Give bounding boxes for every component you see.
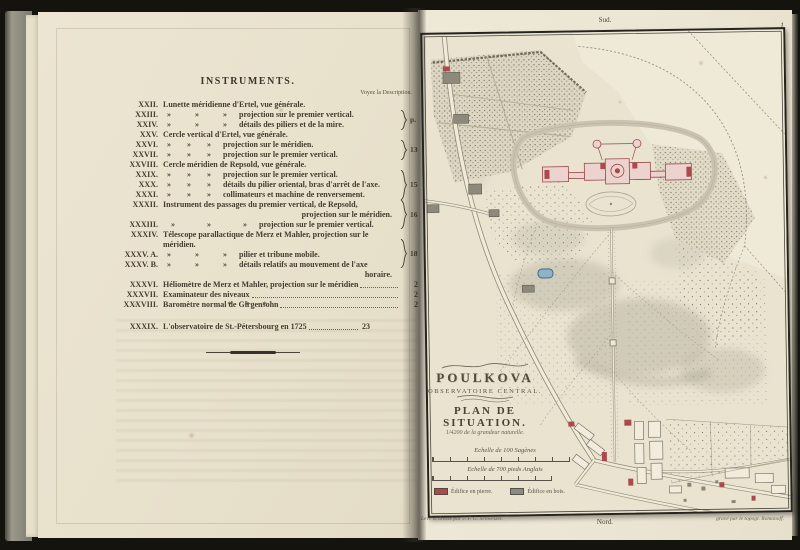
table-row: XXXII.Instrument des passages du premier…: [108, 200, 426, 220]
left-page: INSTRUMENTS. Voyez la Description. XXII.…: [38, 12, 418, 538]
toc-roman-numeral: XXXI.: [108, 190, 163, 200]
table-row: XXXIX.L'observatoire de St.-Pétersbourg …: [108, 322, 426, 332]
table-row: XXXIV.Télescope parallactique de Merz et…: [108, 230, 426, 250]
toc-roman-numeral: XXXIV.: [108, 230, 163, 250]
stone-building-small: [443, 66, 450, 71]
wood-swatch: [510, 488, 524, 495]
toc-entry-text: » » » détails du pilier oriental, bras d…: [163, 180, 392, 190]
legend-label: Édifice en bois.: [527, 489, 565, 495]
table-row: XXV.Cercle vertical d'Ertel, vue général…: [108, 130, 426, 140]
instrument-list-last: XXXIX.L'observatoire de St.-Pétersbourg …: [108, 322, 426, 332]
toc-roman-numeral: XXXVII.: [108, 290, 163, 300]
legend-label: Édifice en pierre.: [451, 489, 492, 495]
table-row: XXIII. » » » projection sur le premier v…: [108, 110, 426, 120]
map-legend: Édifice en pierre. Édifice en bois.: [434, 488, 583, 495]
foxing-spot: [133, 302, 138, 307]
toc-entry-text: » » » projection sur le premier vertical…: [163, 170, 392, 180]
column-header: Voyez la Description.: [360, 90, 412, 96]
toc-roman-numeral: XXXIII.: [108, 220, 163, 230]
toc-roman-numeral: XXXV. A.: [108, 250, 163, 260]
toc-entry-text: » » » projection sur le méridien.: [163, 140, 392, 150]
scale-bar-feet: [432, 476, 552, 481]
subtitle-flourish: [455, 395, 515, 403]
decorative-rule: [206, 352, 300, 353]
instrument-list: XXII.Lunette méridienne d'Ertel, vue gén…: [108, 100, 426, 310]
table-row: XXXV. B. » » » détails relatifs au mouve…: [108, 260, 426, 280]
toc-roman-numeral: XXV.: [108, 130, 163, 140]
toc-roman-numeral: XXIV.: [108, 120, 163, 130]
legend-item-stone: Édifice en pierre.: [434, 488, 492, 495]
map-subtitle: OBSERVATOIRE CENTRAL.: [426, 388, 544, 395]
toc-entry-text: L'observatoire de St.-Pétersbourg en 172…: [163, 322, 307, 332]
toc-entry-text: » » » pilier et tribune mobile.: [163, 250, 392, 260]
table-row: XXXI. » » » collimateurs et machine de r…: [108, 190, 426, 200]
toc-roman-numeral: XXII.: [108, 100, 163, 110]
map-plate: [420, 27, 793, 518]
toc-roman-numeral: XXIX.: [108, 170, 163, 180]
table-row: XXVIII.Cercle méridien de Repsold, vue g…: [108, 160, 426, 170]
show-through-text: [116, 312, 416, 482]
foxing-spot: [698, 60, 704, 66]
title-flourish: [440, 362, 530, 370]
toc-roman-numeral: XXVI.: [108, 140, 163, 150]
toc-entry-text: » » » projection sur le premier vertical…: [163, 220, 392, 230]
map-cartouche: POULKOVA OBSERVATOIRE CENTRAL. PLAN DE S…: [426, 362, 544, 436]
scale-label-sagenes: Echelle de 100 Sagènes: [430, 447, 580, 454]
table-row: XXXVI.Héliomètre de Merz et Mahler, proj…: [108, 280, 426, 290]
table-row: XXIX. » » » projection sur le premier ve…: [108, 170, 426, 180]
scale-bar-sagenes: [432, 457, 570, 462]
table-row: XXXVII.Examinateur des niveaux222: [108, 290, 426, 300]
toc-entry-text: » » » détails des piliers et de la mire.: [163, 120, 392, 130]
toc-entry-text: Héliomètre de Merz et Mahler, projection…: [163, 280, 358, 290]
toc-roman-numeral: XXXV. B.: [108, 260, 163, 280]
toc-entry-text: » » » projection sur le premier vertical…: [163, 150, 392, 160]
table-row: XXXV. A. » » » pilier et tribune mobile.: [108, 250, 426, 260]
orientation-label-top: Sud.: [418, 16, 792, 24]
foxing-spot: [618, 100, 622, 104]
toc-entry-text: Examinateur des niveaux: [163, 290, 250, 300]
foxing-spot: [188, 432, 195, 439]
dotted-leader: [360, 280, 398, 288]
toc-page-number: 23: [360, 322, 426, 332]
table-row: XXVI. » » » projection sur le méridien.: [108, 140, 426, 150]
foxing-spot: [763, 175, 768, 180]
table-row: XXXIII. » » » projection sur le premier …: [108, 220, 426, 230]
map-scale-note: 1/4200 de la grandeur naturelle.: [426, 430, 544, 436]
toc-roman-numeral: XXX.: [108, 180, 163, 190]
toc-roman-numeral: XXVIII.: [108, 160, 163, 170]
toc-entry-text: Télescope parallactique de Merz et Mahle…: [163, 230, 392, 250]
scale-label-feet: Echelle de 700 pieds Anglais: [430, 466, 580, 473]
toc-entry-text: » » » collimateurs et machine de renvers…: [163, 190, 392, 200]
dotted-leader: [309, 322, 358, 330]
situation-map-graphic: [422, 29, 791, 516]
toc-roman-numeral: XXIII.: [108, 110, 163, 120]
toc-entry-text: » » » détails relatifs au mouvement de l…: [163, 260, 392, 280]
table-row: XXX. » » » détails du pilier oriental, b…: [108, 180, 426, 190]
right-page: Sud. 1: [418, 10, 792, 540]
engraver-credit: gravé par le topogr. Romanoff.: [716, 516, 784, 522]
table-row: XXII.Lunette méridienne d'Ertel, vue gén…: [108, 100, 426, 110]
toc-roman-numeral: XXVII.: [108, 150, 163, 160]
foxing-spot: [278, 107, 284, 113]
toc-entry-text: Cercle méridien de Repsold, vue générale…: [163, 160, 392, 170]
stone-swatch: [434, 488, 448, 495]
toc-roman-numeral: XXXVI.: [108, 280, 163, 290]
map-plan-label: PLAN DE SITUATION.: [426, 405, 544, 429]
dotted-leader: [252, 290, 398, 298]
table-row: XXVII. » » » projection sur le premier v…: [108, 150, 426, 160]
toc-roman-numeral: XXXIX.: [108, 322, 163, 332]
pond: [538, 269, 553, 278]
toc-entry-text: Instrument des passages du premier verti…: [163, 200, 392, 220]
legend-item-wood: Édifice en bois.: [510, 488, 565, 495]
toc-entry-text: Cercle vertical d'Ertel, vue générale.: [163, 130, 392, 140]
toc-roman-numeral: XXXII.: [108, 200, 163, 220]
foxing-spot: [368, 217, 373, 222]
page-title: INSTRUMENTS.: [88, 76, 408, 87]
table-row: XXIV. » » » détails des piliers et de la…: [108, 120, 426, 130]
map-title: POULKOVA: [426, 370, 544, 386]
